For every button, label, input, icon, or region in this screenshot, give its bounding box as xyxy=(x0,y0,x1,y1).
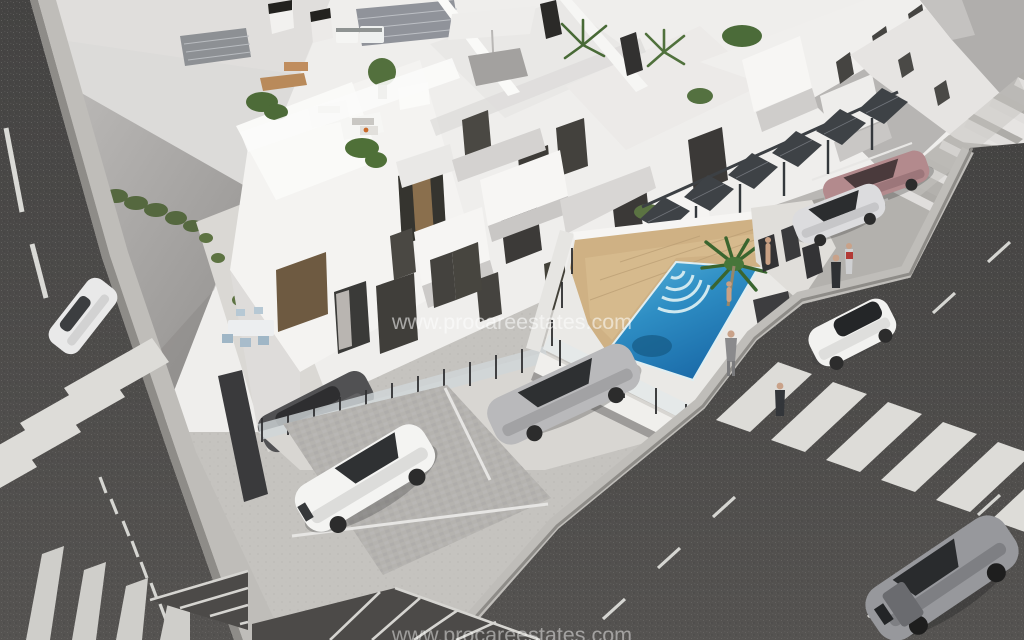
svg-text:www.procareestates.com: www.procareestates.com xyxy=(391,623,632,640)
svg-text:www.procareestates.com: www.procareestates.com xyxy=(391,310,632,334)
